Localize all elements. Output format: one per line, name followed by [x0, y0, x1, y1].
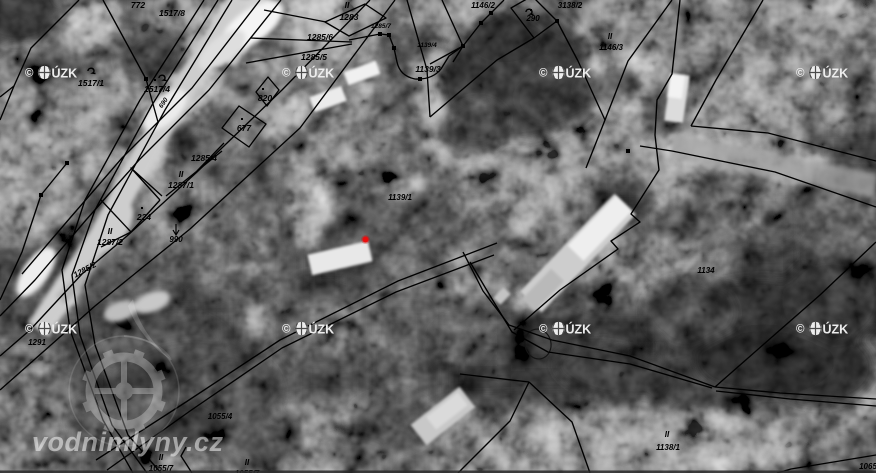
svg-text:1285/4: 1285/4: [191, 153, 217, 163]
svg-text:1285/5: 1285/5: [301, 52, 327, 62]
svg-text:II: II: [245, 458, 250, 467]
svg-text:1139/4: 1139/4: [417, 42, 437, 49]
svg-text:1517/1: 1517/1: [78, 78, 104, 88]
svg-text:1065: 1065: [859, 462, 876, 471]
svg-text:1287/1: 1287/1: [168, 180, 194, 190]
svg-text:1285/6: 1285/6: [307, 32, 333, 42]
svg-text:990: 990: [169, 235, 183, 244]
svg-text:1055/4: 1055/4: [208, 412, 233, 421]
svg-text:1291: 1291: [28, 338, 46, 347]
svg-text:1287/2: 1287/2: [97, 237, 123, 247]
svg-text:1517/4: 1517/4: [144, 84, 170, 94]
svg-text:1285/7: 1285/7: [371, 23, 391, 30]
svg-text:1283: 1283: [340, 12, 359, 22]
svg-text:II: II: [665, 430, 670, 439]
svg-text:772: 772: [131, 0, 145, 10]
svg-text:290: 290: [525, 14, 540, 23]
svg-text:1517/8: 1517/8: [159, 8, 185, 18]
svg-text:II: II: [179, 169, 184, 179]
svg-text:820: 820: [258, 93, 272, 103]
svg-text:II: II: [608, 32, 613, 41]
svg-text:II: II: [108, 226, 113, 236]
svg-text:1134: 1134: [697, 266, 715, 275]
svg-text:vodnimlyny.cz: vodnimlyny.cz: [32, 427, 224, 457]
svg-text:224: 224: [136, 212, 151, 222]
svg-text:1146/3: 1146/3: [599, 43, 623, 52]
svg-text:1138/1: 1138/1: [656, 443, 680, 452]
svg-text:II: II: [345, 0, 350, 10]
svg-text:1139/3: 1139/3: [415, 64, 441, 74]
svg-text:1146/2: 1146/2: [471, 1, 495, 10]
svg-text:677: 677: [237, 123, 252, 133]
svg-text:3138/2: 3138/2: [558, 1, 583, 10]
svg-text:1139/1: 1139/1: [388, 193, 412, 202]
